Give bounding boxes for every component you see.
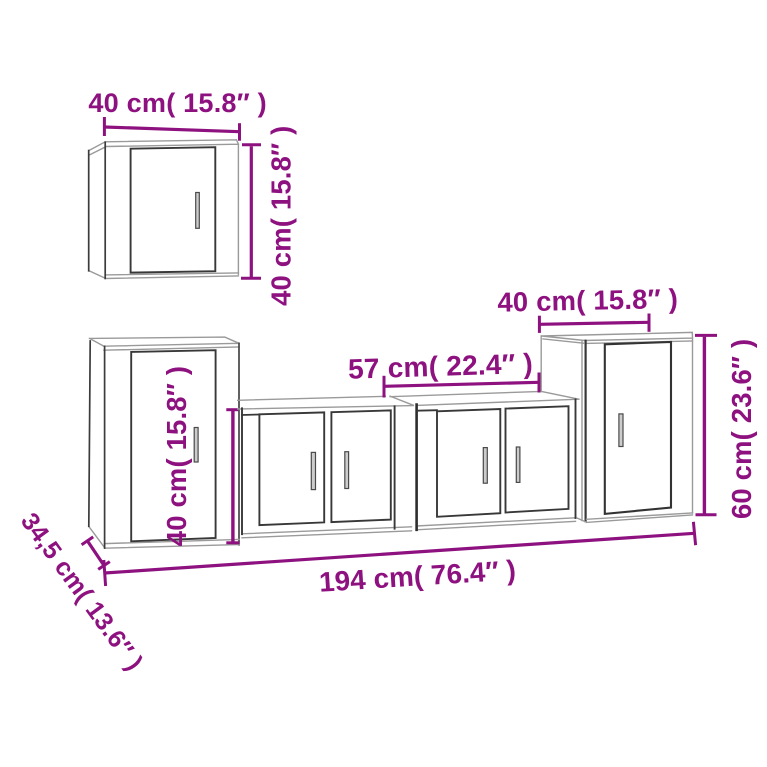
svg-text:40 cm( 15.8″ ): 40 cm( 15.8″ ) xyxy=(265,126,296,306)
svg-text:60 cm( 23.6″ ): 60 cm( 23.6″ ) xyxy=(726,339,757,519)
svg-text:40 cm( 15.8″ ): 40 cm( 15.8″ ) xyxy=(161,366,192,546)
svg-text:40 cm( 15.8″ ): 40 cm( 15.8″ ) xyxy=(88,87,266,118)
svg-text:40 cm( 15.8″ ): 40 cm( 15.8″ ) xyxy=(497,283,678,318)
svg-text:57 cm( 22.4″ ): 57 cm( 22.4″ ) xyxy=(348,348,534,385)
